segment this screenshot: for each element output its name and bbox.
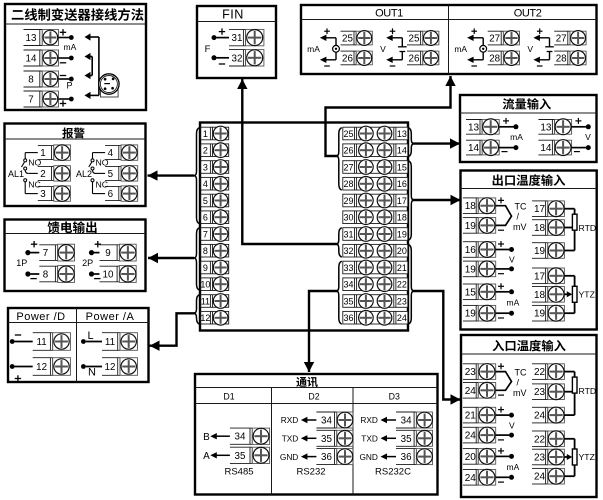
svg-text:6: 6 [108,189,114,200]
svg-text:FIN: FIN [222,8,244,22]
svg-text:Power /D: Power /D [16,311,65,323]
svg-text:N: N [88,367,96,379]
svg-text:27: 27 [343,162,353,172]
svg-text:10: 10 [200,280,210,290]
svg-text:18: 18 [534,290,546,301]
svg-text:7: 7 [28,95,33,106]
svg-text:12: 12 [200,313,210,323]
svg-text:31: 31 [343,229,353,239]
svg-text:16: 16 [465,245,477,256]
svg-text:9: 9 [203,263,208,273]
svg-text:23: 23 [465,367,477,378]
svg-text:24: 24 [534,472,546,483]
svg-text:8: 8 [43,270,49,281]
svg-text:RS232C: RS232C [375,467,411,478]
svg-text:24: 24 [397,313,407,323]
svg-text:RTD: RTD [579,386,597,396]
svg-text:31: 31 [232,33,243,44]
svg-text:26: 26 [409,53,420,64]
svg-text:RS232: RS232 [296,467,325,478]
svg-text:22: 22 [534,367,546,378]
svg-text:13: 13 [468,122,480,133]
svg-text:GND: GND [280,452,298,462]
svg-text:20: 20 [397,246,407,256]
svg-text:YTZ: YTZ [579,290,596,300]
svg-text:32: 32 [232,53,243,64]
svg-text:AL1: AL1 [8,169,24,179]
svg-text:2: 2 [203,146,208,156]
svg-text:34: 34 [321,416,332,427]
svg-text:23: 23 [534,453,546,464]
svg-text:18: 18 [465,201,477,212]
svg-text:TC: TC [515,202,527,212]
svg-text:V: V [585,132,591,142]
svg-text:A: A [203,451,210,462]
svg-text:V: V [380,44,386,54]
svg-text:TC: TC [515,368,527,378]
svg-text:V: V [509,254,515,264]
svg-text:7: 7 [43,248,48,259]
svg-text:36: 36 [321,452,332,463]
svg-text:/: / [517,378,520,388]
svg-text:V: V [509,420,515,430]
svg-text:9: 9 [105,248,110,259]
svg-text:25: 25 [343,129,353,139]
svg-text:34: 34 [401,416,412,427]
svg-text:25: 25 [409,33,420,44]
svg-text:22: 22 [397,280,407,290]
svg-text:32: 32 [343,246,353,256]
svg-text:13: 13 [540,122,552,133]
svg-text:36: 36 [343,313,353,323]
svg-text:28: 28 [556,53,567,64]
svg-text:YTZ: YTZ [579,452,596,462]
svg-text:35: 35 [343,296,353,306]
svg-text:35: 35 [321,434,332,445]
svg-text:14: 14 [26,54,37,65]
svg-text:15: 15 [397,162,407,172]
svg-text:27: 27 [489,33,500,44]
svg-text:OUT2: OUT2 [514,8,542,20]
svg-text:RXD: RXD [281,415,299,425]
svg-text:4: 4 [203,179,208,189]
svg-text:25: 25 [342,33,353,44]
svg-text:21: 21 [465,411,477,422]
svg-text:19: 19 [465,221,477,232]
svg-text:2: 2 [40,169,45,180]
svg-text:21: 21 [397,263,407,273]
svg-text:23: 23 [397,296,407,306]
svg-text:20: 20 [465,452,477,463]
svg-text:26: 26 [342,53,353,64]
svg-text:D2: D2 [308,392,319,402]
svg-text:16: 16 [397,179,407,189]
svg-text:F: F [205,44,211,55]
svg-text:13: 13 [26,33,37,44]
svg-text:35: 35 [401,434,412,445]
svg-text:19: 19 [465,309,477,320]
svg-text:L: L [87,330,93,342]
svg-text:3: 3 [203,162,208,172]
svg-text:24: 24 [465,386,477,397]
svg-text:RTD: RTD [579,223,597,233]
svg-text:B: B [203,432,210,443]
svg-text:8: 8 [28,75,34,86]
svg-text:mA: mA [507,462,520,472]
svg-text:28: 28 [489,53,500,64]
svg-text:5: 5 [203,196,208,206]
svg-text:24: 24 [465,431,477,442]
svg-text:/: / [517,212,520,222]
svg-text:18: 18 [397,213,407,223]
svg-text:18: 18 [534,223,546,234]
svg-text:24: 24 [465,473,477,484]
svg-text:D1: D1 [223,392,234,402]
svg-text:11: 11 [105,337,115,348]
svg-text:6: 6 [203,213,208,223]
svg-text:15: 15 [465,287,477,298]
svg-text:24: 24 [534,411,546,422]
svg-text:26: 26 [343,146,353,156]
svg-text:mA: mA [64,42,77,52]
svg-text:8: 8 [203,246,208,256]
svg-text:12: 12 [36,362,47,373]
svg-text:14: 14 [540,143,552,154]
svg-text:11: 11 [201,296,210,306]
svg-text:mV: mV [513,222,527,232]
svg-text:mA: mA [507,298,520,308]
svg-text:mV: mV [513,388,527,398]
svg-text:3: 3 [40,189,46,200]
svg-text:27: 27 [556,33,567,44]
svg-text:TXD: TXD [361,434,378,444]
svg-text:OUT1: OUT1 [375,8,403,20]
svg-text:11: 11 [37,337,47,348]
svg-text:19: 19 [397,229,407,239]
svg-text:22: 22 [534,434,546,445]
svg-text:29: 29 [343,196,353,206]
svg-text:14: 14 [468,143,480,154]
svg-text:D3: D3 [389,392,400,402]
svg-text:10: 10 [103,270,114,281]
svg-text:AL2: AL2 [76,169,92,179]
svg-text:5: 5 [108,169,114,180]
svg-text:P: P [67,81,73,91]
svg-text:mA: mA [307,44,320,54]
svg-text:17: 17 [534,271,546,282]
svg-text:Power /A: Power /A [86,311,135,323]
svg-text:30: 30 [343,213,353,223]
svg-text:GND: GND [359,452,377,462]
svg-text:13: 13 [397,129,407,139]
svg-text:7: 7 [203,229,208,239]
svg-text:1: 1 [203,129,208,139]
svg-text:V: V [527,44,533,54]
svg-text:17: 17 [397,196,407,206]
svg-text:17: 17 [534,204,546,215]
svg-text:23: 23 [534,387,546,398]
svg-text:NC: NC [96,180,109,190]
svg-text:14: 14 [397,146,407,156]
svg-text:19: 19 [534,246,546,257]
svg-text:34: 34 [235,432,246,443]
svg-text:19: 19 [465,264,477,275]
svg-text:28: 28 [343,179,353,189]
svg-text:36: 36 [401,452,412,463]
svg-text:19: 19 [534,309,546,320]
svg-text:RXD: RXD [360,415,378,425]
svg-text:mA: mA [454,44,467,54]
svg-text:12: 12 [105,362,116,373]
svg-text:mA: mA [510,132,523,142]
svg-text:NC: NC [28,180,41,190]
svg-text:33: 33 [343,263,353,273]
svg-text:NO: NO [28,157,41,167]
svg-text:NO: NO [96,157,109,167]
svg-text:2P: 2P [82,258,93,268]
svg-text:34: 34 [343,280,353,290]
svg-text:1P: 1P [16,258,27,268]
svg-text:TXD: TXD [282,434,299,444]
svg-text:RS485: RS485 [224,467,253,478]
svg-text:35: 35 [235,451,246,462]
